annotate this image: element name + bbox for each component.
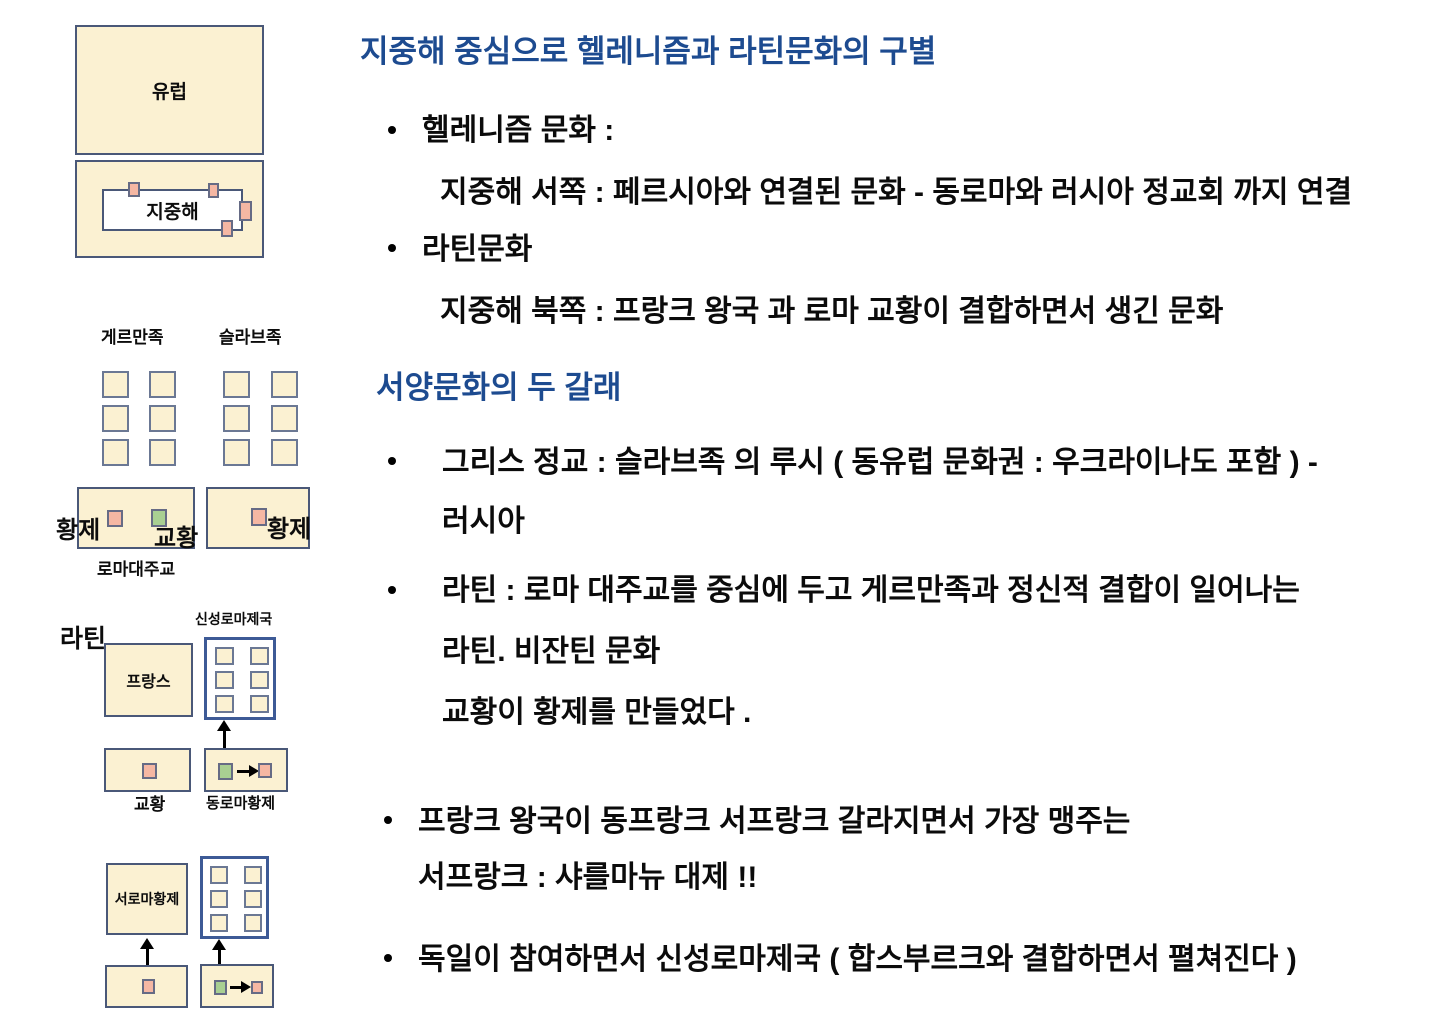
holy-roman-empire-label: 신성로마제국 bbox=[195, 612, 272, 626]
bullet-dot bbox=[388, 586, 396, 594]
people-square bbox=[149, 405, 176, 432]
note-line: 라틴문화 bbox=[422, 233, 532, 268]
emperor-square bbox=[251, 508, 267, 526]
mediterranean-marker-square bbox=[208, 183, 219, 198]
arrow-up-shaft bbox=[223, 730, 226, 748]
section2-title: 서양문화의 두 갈래 bbox=[376, 370, 621, 406]
emperor-square bbox=[107, 510, 123, 527]
pope-square bbox=[142, 763, 157, 779]
slavic-people-grid bbox=[223, 371, 298, 466]
people-square bbox=[250, 671, 269, 689]
people-square bbox=[244, 914, 262, 932]
note-line: 라틴 : 로마 대주교를 중심에 두고 게르만족과 정신적 결합이 일어나는 bbox=[442, 574, 1300, 609]
pope-square bbox=[142, 979, 155, 994]
note-line: 프랑크 왕국이 동프랑크 서프랑크 갈라지면서 가장 맹주는 bbox=[418, 805, 1130, 840]
note-line: 독일이 참여하면서 신성로마제국 ( 합스부르크와 결합하면서 펼쳐진다 ) bbox=[418, 943, 1297, 978]
people-square bbox=[215, 647, 234, 665]
people-square bbox=[223, 405, 250, 432]
people-square bbox=[215, 695, 234, 713]
crowned-pink-square bbox=[251, 981, 263, 994]
germanic-people-grid bbox=[102, 371, 176, 466]
note-line: 지중해 북쪽 : 프랑크 왕국 과 로마 교황이 결합하면서 생긴 문화 bbox=[440, 295, 1223, 330]
holy-roman-empire-box bbox=[200, 856, 269, 939]
hre-people-grid bbox=[210, 866, 262, 932]
note-line: 지중해 서쪽 : 페르시아와 연결된 문화 - 동로마와 러시아 정교회 까지 … bbox=[440, 176, 1352, 211]
people-square bbox=[244, 866, 262, 884]
people-square bbox=[210, 866, 228, 884]
bullet-dot bbox=[384, 954, 392, 962]
note-line: 교황이 황제를 만들었다 . bbox=[442, 696, 751, 731]
roman-archbishop-label: 로마대주교 bbox=[97, 561, 175, 578]
people-square bbox=[149, 371, 176, 398]
europe-box: 유럽 bbox=[75, 25, 264, 155]
mediterranean-marker-square bbox=[239, 201, 252, 221]
mediterranean-marker-square bbox=[128, 182, 140, 197]
people-square bbox=[102, 371, 129, 398]
people-square bbox=[102, 405, 129, 432]
people-square bbox=[223, 371, 250, 398]
east-roman-emperor-label: 동로마황제 bbox=[206, 796, 275, 811]
note-line: 헬레니즘 문화 : bbox=[422, 114, 614, 149]
west-roman-emperor-box: 서로마황제 bbox=[106, 863, 188, 935]
note-line: 서프랑크 : 샤를마뉴 대제 !! bbox=[418, 861, 757, 896]
people-square bbox=[250, 695, 269, 713]
people-square bbox=[210, 890, 228, 908]
bullet-dot bbox=[388, 457, 396, 465]
mediterranean-marker-square bbox=[221, 220, 233, 237]
people-square bbox=[271, 371, 298, 398]
holy-roman-empire-box bbox=[204, 637, 276, 720]
crowned-pink-square bbox=[258, 763, 272, 778]
west-roman-emperor-label: 서로마황제 bbox=[115, 889, 179, 909]
arrow-right-icon bbox=[241, 981, 251, 993]
emperor-right-label: 황제 bbox=[267, 518, 311, 542]
germanic-label: 게르만족 bbox=[101, 329, 164, 346]
hre-people-grid bbox=[215, 647, 269, 713]
bullet-dot bbox=[388, 244, 396, 252]
note-line: 라틴. 비잔틴 문화 bbox=[442, 635, 660, 670]
people-square bbox=[250, 647, 269, 665]
france-box: 프랑스 bbox=[104, 643, 193, 717]
crowning-green-square bbox=[218, 763, 233, 780]
note-line: 러시아 bbox=[442, 505, 525, 540]
people-square bbox=[210, 914, 228, 932]
latin-label: 라틴 bbox=[60, 627, 106, 652]
crowning-green-square bbox=[214, 980, 227, 995]
people-square bbox=[271, 439, 298, 466]
bullet-dot bbox=[388, 126, 396, 134]
people-square bbox=[271, 405, 298, 432]
people-square bbox=[223, 439, 250, 466]
bullet-dot bbox=[384, 816, 392, 824]
france-label: 프랑스 bbox=[126, 668, 170, 692]
people-square bbox=[149, 439, 176, 466]
people-square bbox=[215, 671, 234, 689]
mediterranean-label: 지중해 bbox=[146, 197, 198, 224]
section1-title: 지중해 중심으로 헬레니즘과 라틴문화의 구별 bbox=[360, 34, 936, 70]
slavic-label: 슬라브족 bbox=[219, 329, 282, 346]
note-line: 그리스 정교 : 슬라브족 의 루시 ( 동유럽 문화권 : 우크라이나도 포함… bbox=[442, 446, 1318, 481]
pope-label: 교황 bbox=[154, 527, 198, 551]
pope-label: 교황 bbox=[134, 796, 165, 813]
europe-label: 유럽 bbox=[152, 77, 187, 104]
emperor-left-label: 황제 bbox=[56, 519, 100, 543]
people-square bbox=[102, 439, 129, 466]
people-square bbox=[244, 890, 262, 908]
